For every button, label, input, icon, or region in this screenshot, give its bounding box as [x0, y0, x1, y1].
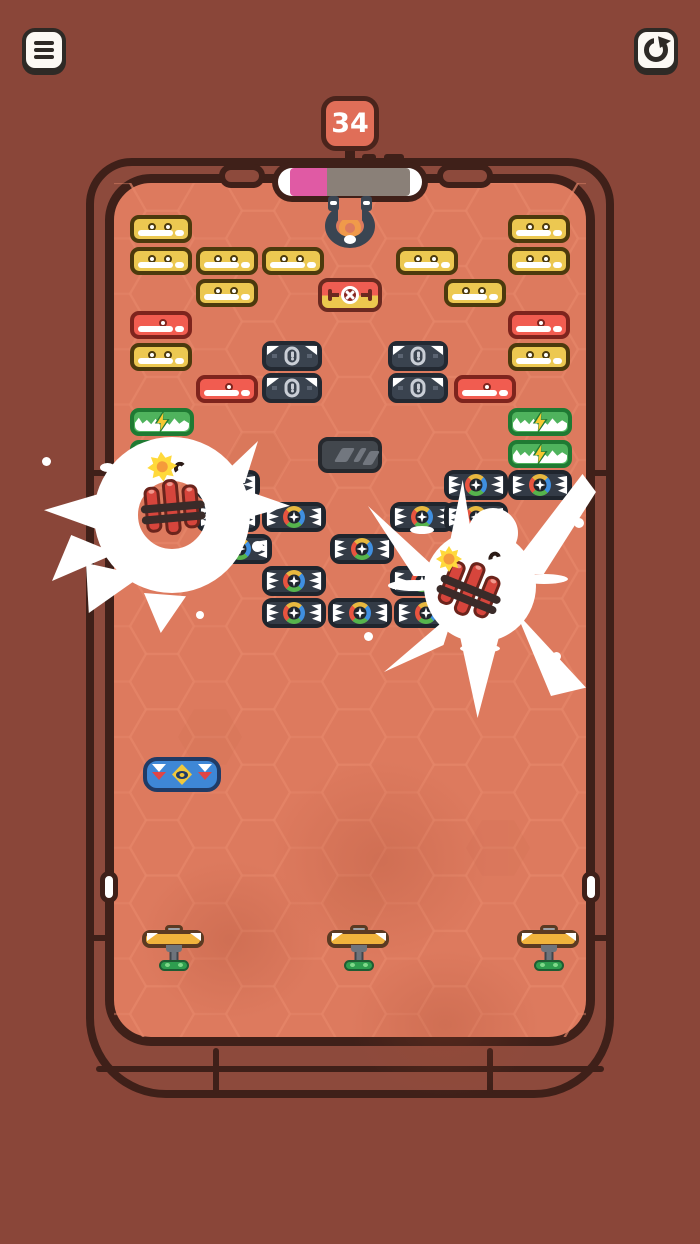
brick-red	[196, 375, 258, 403]
powerup-capsule	[143, 757, 221, 792]
brick-red	[508, 311, 570, 339]
explosion-speck	[100, 463, 115, 472]
explosion-spike	[516, 612, 586, 696]
launcher-base	[344, 960, 374, 971]
brick-dark	[388, 341, 448, 371]
magnet-gap	[338, 198, 362, 220]
explosion-speck	[364, 632, 373, 641]
explosion-speck	[520, 574, 568, 584]
tnt-bundle	[136, 452, 207, 543]
exclamation-icon	[285, 347, 300, 366]
explosion-speck	[552, 652, 561, 661]
capsule-chevron	[198, 764, 212, 772]
brick-shuriken	[330, 534, 394, 564]
brick-glass	[318, 437, 382, 473]
brick-shuriken	[262, 566, 326, 596]
brick-yellow	[262, 247, 324, 275]
brick-yellow	[508, 343, 570, 371]
explosion-speck	[252, 541, 263, 552]
launcher	[142, 924, 206, 972]
capsule-chevron	[152, 764, 166, 772]
brick-yellow	[130, 247, 192, 275]
explosion-speck	[162, 607, 175, 614]
brick-red	[454, 375, 516, 403]
wall-notch	[100, 871, 118, 903]
exclamation-icon	[411, 379, 426, 398]
exclamation-icon	[285, 379, 300, 398]
brick-green	[130, 408, 194, 436]
launcher	[327, 924, 391, 972]
launcher-base	[534, 960, 564, 971]
explosion-speck	[388, 580, 440, 591]
brick-shuriken	[262, 598, 326, 628]
brick-shuriken	[328, 598, 392, 628]
brick-dark	[388, 373, 448, 403]
brick-yellow	[196, 279, 258, 307]
explosion-speck	[410, 526, 434, 534]
brick-dark	[262, 373, 322, 403]
explosion-speck	[42, 457, 51, 466]
brick-yellow	[196, 247, 258, 275]
fuse-icon	[173, 461, 186, 475]
brick-yellow	[396, 247, 458, 275]
wall-notch	[582, 871, 600, 903]
brick-dark	[262, 341, 322, 371]
explosion-speck	[196, 611, 204, 619]
exclamation-icon	[411, 347, 426, 366]
brick-detonator	[318, 278, 382, 312]
game-screen: 34	[0, 0, 700, 1244]
brick-yellow	[130, 215, 192, 243]
brick-yellow	[444, 279, 506, 307]
magnet-mouth	[344, 235, 356, 244]
explosion-speck	[574, 518, 584, 528]
brick-yellow	[508, 215, 570, 243]
magnet-stem-mark	[363, 201, 370, 205]
brick-shuriken	[444, 470, 508, 500]
board-layer	[0, 0, 700, 1244]
brick-shuriken	[508, 470, 572, 500]
fuse-icon	[486, 549, 503, 566]
brick-yellow	[130, 343, 192, 371]
brick-green	[508, 440, 572, 468]
launcher-base	[159, 960, 189, 971]
brick-green	[508, 408, 572, 436]
brick-yellow	[508, 247, 570, 275]
magnet-stem-mark	[330, 201, 337, 205]
explosion-speck	[460, 644, 500, 653]
brick-red	[130, 311, 192, 339]
launcher	[517, 924, 581, 972]
